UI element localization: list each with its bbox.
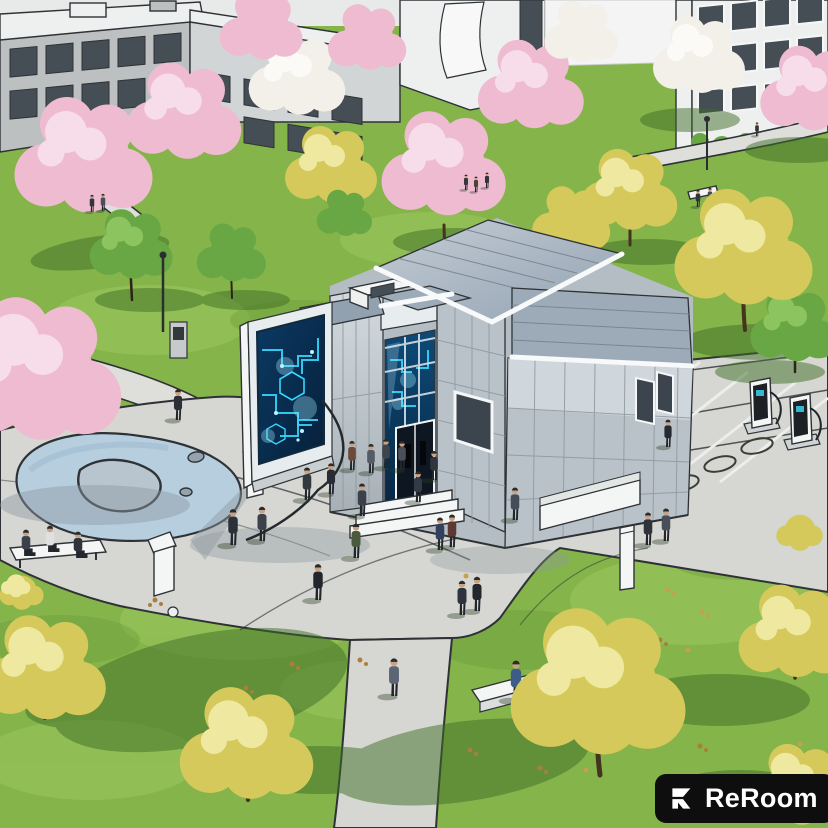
campus-illustration: ReRoom bbox=[0, 0, 828, 828]
pond-rock bbox=[180, 488, 192, 496]
side-window bbox=[455, 392, 492, 452]
wing-window bbox=[636, 378, 654, 424]
reroom-watermark-text: ReRoom bbox=[705, 783, 818, 814]
bollard-sign bbox=[620, 525, 634, 590]
wing-window bbox=[657, 372, 673, 414]
info-kiosk bbox=[170, 322, 187, 358]
campus-scene-svg bbox=[0, 0, 828, 828]
rock bbox=[168, 607, 178, 617]
reroom-logo-icon bbox=[669, 785, 696, 812]
reroom-watermark-badge: ReRoom bbox=[655, 774, 828, 823]
